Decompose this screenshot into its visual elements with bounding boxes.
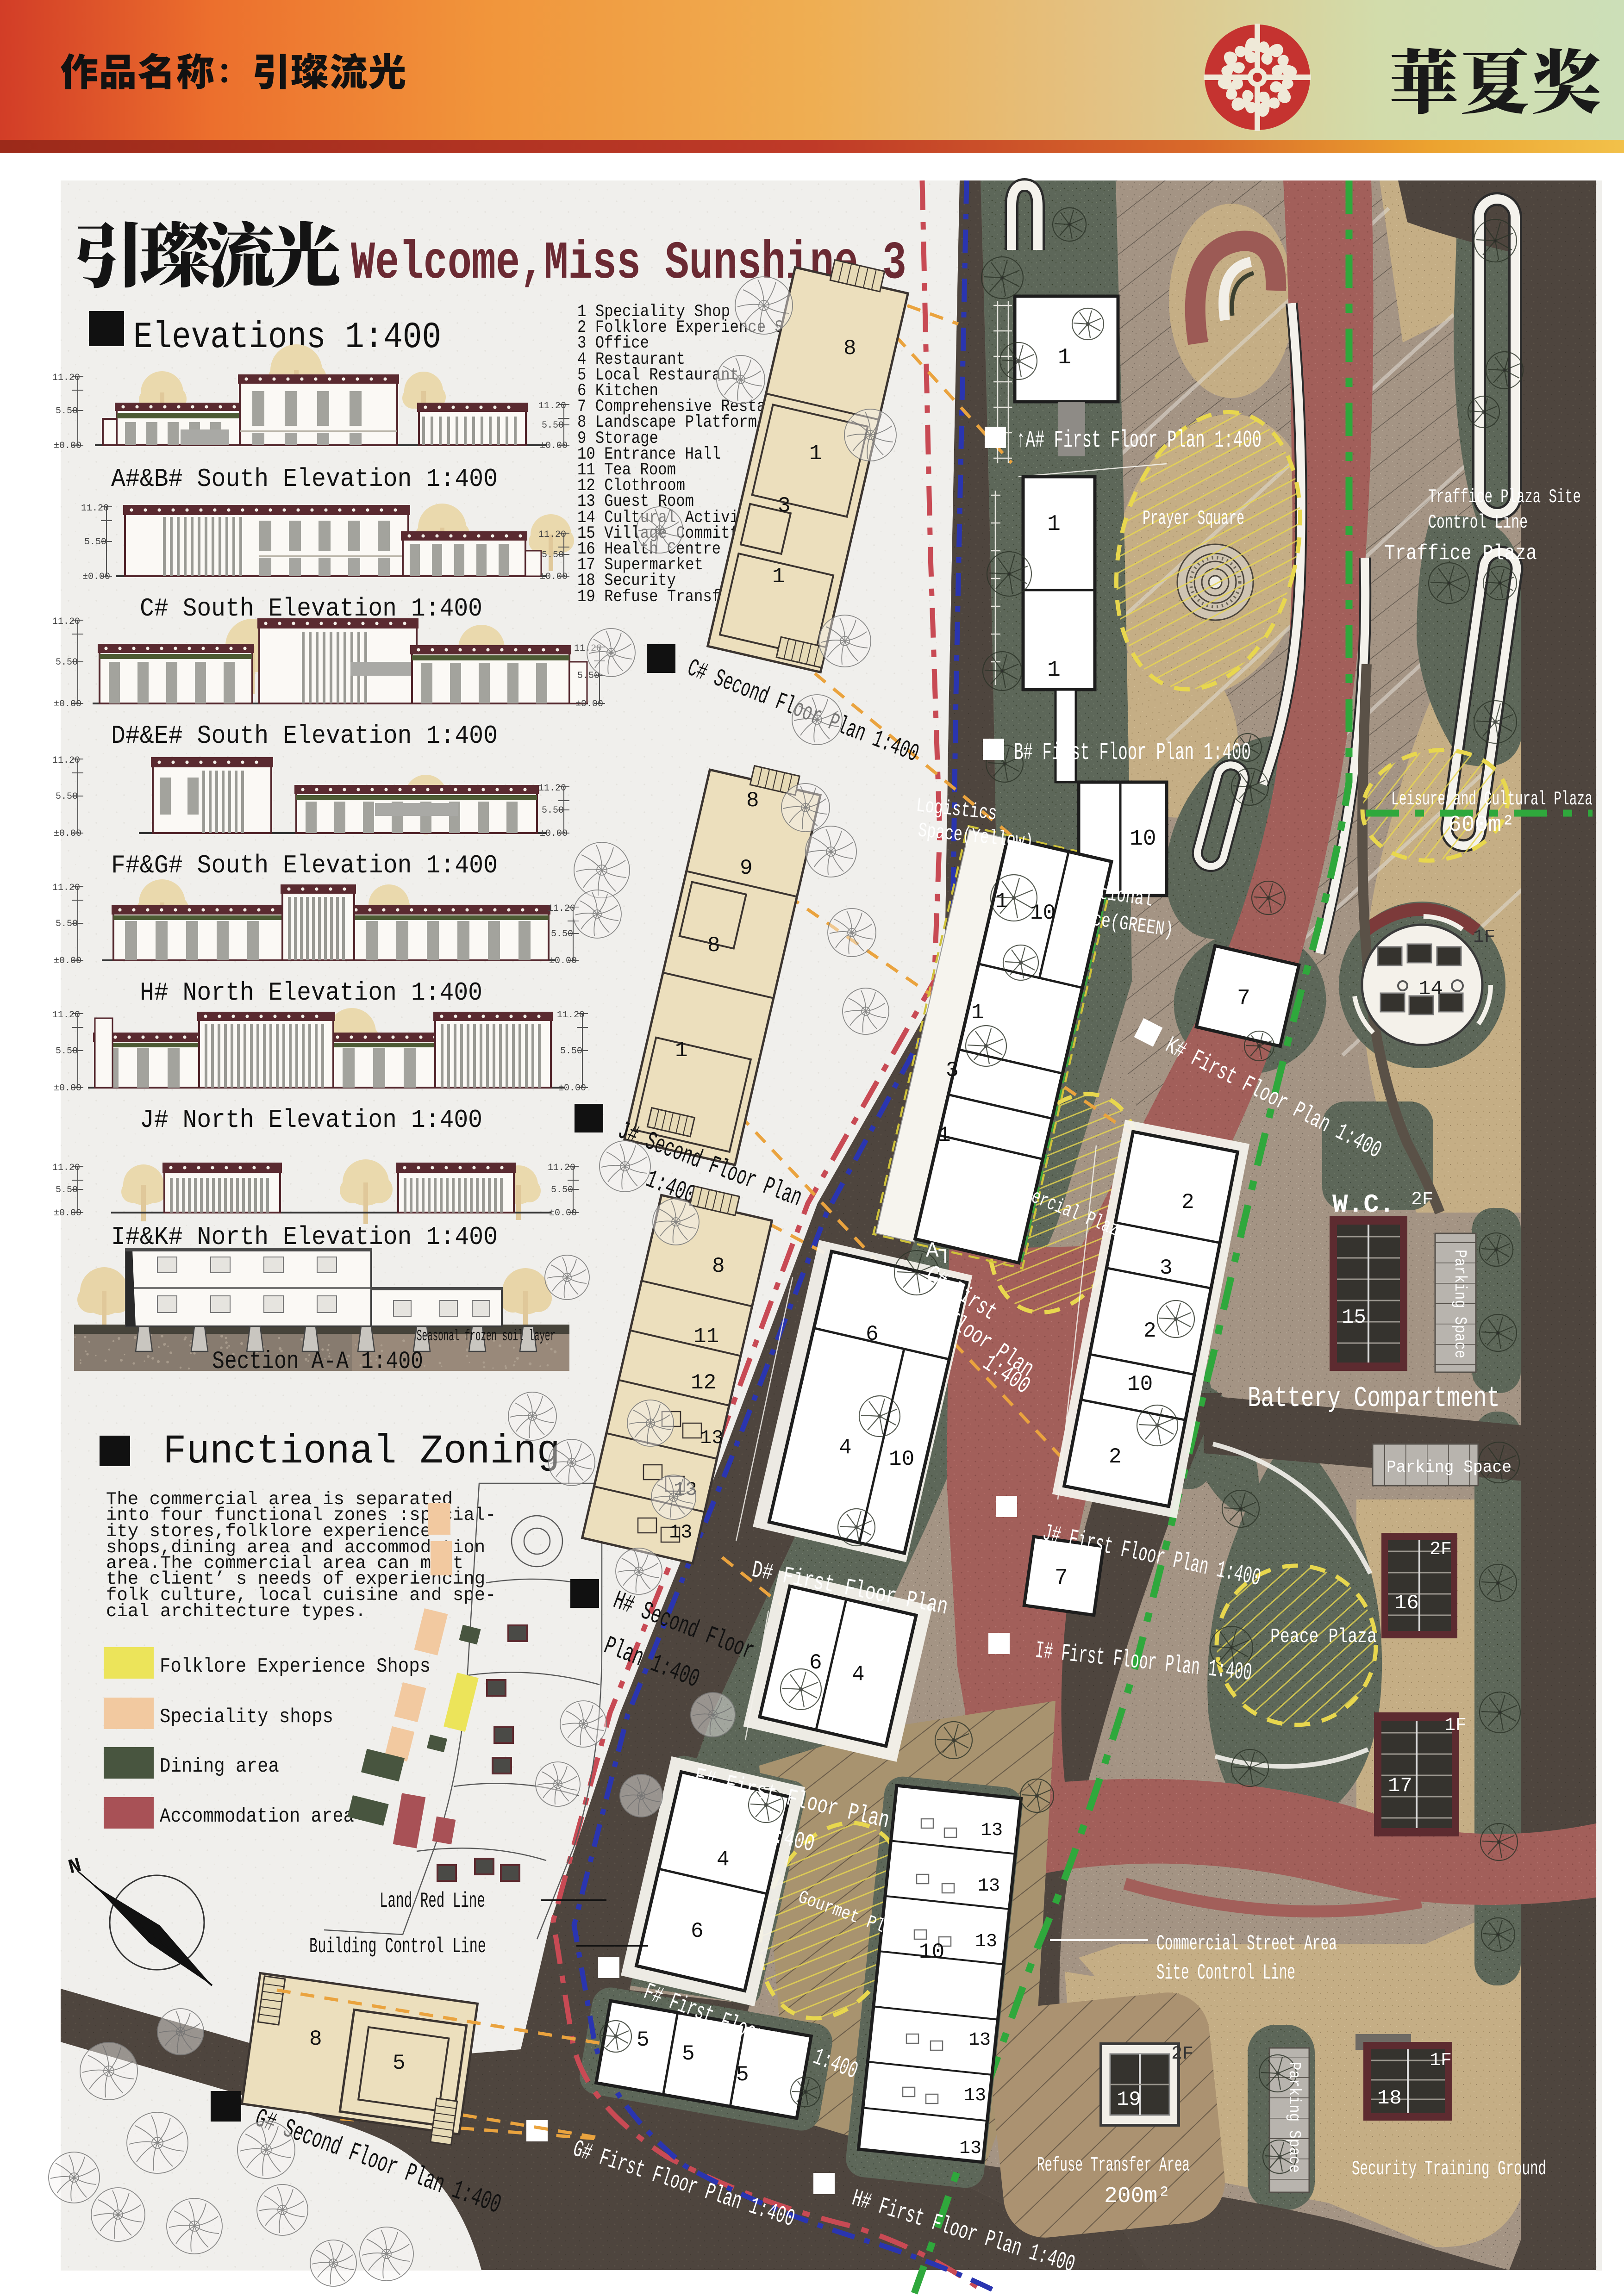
svg-text:W.C.: W.C. bbox=[1332, 1190, 1394, 1220]
svg-text:Prayer Square: Prayer Square bbox=[1143, 507, 1244, 530]
svg-text:1: 1 bbox=[675, 1039, 688, 1063]
svg-text:13: 13 bbox=[959, 2138, 981, 2159]
svg-text:5.50: 5.50 bbox=[84, 537, 106, 548]
svg-text:Accommodation area: Accommodation area bbox=[160, 1805, 354, 1828]
svg-text:11.20: 11.20 bbox=[52, 373, 80, 383]
svg-text:17: 17 bbox=[1388, 1774, 1412, 1798]
svg-text:8: 8 bbox=[843, 336, 856, 361]
svg-text:Seasonal frozen soil layer: Seasonal frozen soil layer bbox=[417, 1328, 556, 1345]
svg-text:5.50: 5.50 bbox=[542, 420, 564, 431]
svg-text:F#&G# South Elevation 1:400: F#&G# South Elevation 1:400 bbox=[111, 851, 498, 880]
svg-text:Parking Space: Parking Space bbox=[1450, 1250, 1469, 1358]
svg-text:15: 15 bbox=[1342, 1306, 1366, 1329]
svg-text:8: 8 bbox=[707, 933, 720, 958]
svg-text:Leisure and Cultural Plaza: Leisure and Cultural Plaza bbox=[1391, 788, 1593, 810]
svg-text:H# North Elevation 1:400: H# North Elevation 1:400 bbox=[140, 978, 482, 1008]
svg-text:5: 5 bbox=[393, 2051, 406, 2075]
svg-text:2F: 2F bbox=[1411, 1189, 1433, 1210]
svg-text:13: 13 bbox=[964, 2085, 986, 2106]
svg-text:11: 11 bbox=[693, 1325, 719, 1349]
svg-text:5.50: 5.50 bbox=[577, 671, 600, 681]
svg-text:3: 3 bbox=[778, 494, 791, 518]
svg-text:Battery Compartment: Battery Compartment bbox=[1248, 1382, 1500, 1415]
svg-text:±0.00: ±0.00 bbox=[54, 1208, 81, 1219]
svg-text:±0.00: ±0.00 bbox=[549, 1208, 577, 1219]
svg-text:200m²: 200m² bbox=[1104, 2184, 1171, 2209]
svg-text:5.50: 5.50 bbox=[56, 919, 78, 929]
svg-text:A#&B# South Elevation 1:400: A#&B# South Elevation 1:400 bbox=[111, 464, 498, 494]
svg-text:Land Red Line: Land Red Line bbox=[380, 1889, 485, 1913]
svg-text:2F: 2F bbox=[1171, 2044, 1193, 2065]
svg-text:2: 2 bbox=[1181, 1190, 1194, 1214]
svg-text:Speciality shops: Speciality shops bbox=[160, 1705, 333, 1729]
svg-text:11.20: 11.20 bbox=[548, 1163, 575, 1173]
svg-text:1: 1 bbox=[1047, 658, 1061, 683]
svg-text:Folklore Experience Shops: Folklore Experience Shops bbox=[160, 1655, 431, 1678]
svg-text:2: 2 bbox=[1109, 1445, 1122, 1469]
svg-text:5.50: 5.50 bbox=[56, 406, 78, 417]
svg-text:5.50: 5.50 bbox=[551, 1185, 573, 1195]
svg-text:11.20: 11.20 bbox=[538, 529, 566, 540]
svg-text:6: 6 bbox=[691, 1919, 704, 1943]
svg-text:5.50: 5.50 bbox=[56, 1185, 78, 1195]
svg-text:1F: 1F bbox=[1430, 2050, 1452, 2071]
svg-text:Building Control Line: Building Control Line bbox=[309, 1935, 486, 1959]
svg-text:13: 13 bbox=[975, 1931, 997, 1952]
svg-text:±0.00: ±0.00 bbox=[82, 572, 110, 582]
svg-text:1: 1 bbox=[995, 890, 1008, 914]
svg-text:±0.00: ±0.00 bbox=[54, 441, 81, 451]
svg-text:16: 16 bbox=[1394, 1592, 1419, 1615]
svg-text:600m²: 600m² bbox=[1448, 813, 1515, 838]
svg-text:5.50: 5.50 bbox=[56, 791, 78, 802]
svg-text:A┐: A┐ bbox=[926, 1239, 951, 1263]
svg-text:A: A bbox=[1024, 1014, 1037, 1038]
svg-text:Dining area: Dining area bbox=[160, 1755, 279, 1778]
svg-text:↑A# First Floor Plan 1:400: ↑A# First Floor Plan 1:400 bbox=[1016, 427, 1262, 454]
svg-text:I#&K# North Elevation 1:400: I#&K# North Elevation 1:400 bbox=[111, 1222, 498, 1252]
svg-text:4: 4 bbox=[717, 1848, 730, 1872]
svg-text:5.50: 5.50 bbox=[56, 1046, 78, 1057]
svg-text:±0.00: ±0.00 bbox=[54, 956, 81, 966]
svg-text:11.20: 11.20 bbox=[52, 755, 80, 766]
svg-text:±0.00: ±0.00 bbox=[575, 699, 603, 709]
svg-text:5.50: 5.50 bbox=[560, 1046, 582, 1057]
svg-text:Section A-A 1:400: Section A-A 1:400 bbox=[212, 1348, 423, 1376]
svg-text:5.50: 5.50 bbox=[56, 657, 78, 668]
svg-text:2F: 2F bbox=[1430, 1539, 1452, 1560]
svg-text:4: 4 bbox=[839, 1436, 852, 1460]
svg-text:11.20: 11.20 bbox=[538, 401, 566, 411]
svg-text:11.20: 11.20 bbox=[52, 883, 80, 893]
svg-text:Traffice Plaza Site: Traffice Plaza Site bbox=[1428, 486, 1581, 508]
svg-text:Parking Space: Parking Space bbox=[1285, 2062, 1304, 2173]
svg-text:1: 1 bbox=[772, 565, 785, 589]
svg-text:±0.00: ±0.00 bbox=[540, 828, 568, 839]
svg-text:1: 1 bbox=[938, 1123, 951, 1147]
svg-text:10: 10 bbox=[1030, 901, 1056, 925]
svg-text:5.50: 5.50 bbox=[542, 550, 564, 560]
svg-text:9: 9 bbox=[740, 856, 753, 880]
svg-text:1F: 1F bbox=[1444, 1715, 1467, 1736]
svg-text:11.20: 11.20 bbox=[538, 783, 566, 794]
svg-text:2: 2 bbox=[1143, 1319, 1156, 1343]
svg-text:5: 5 bbox=[637, 2028, 650, 2052]
svg-text:11.20: 11.20 bbox=[81, 503, 109, 514]
svg-text:13: 13 bbox=[978, 1876, 1000, 1897]
svg-text:1: 1 bbox=[809, 442, 822, 466]
svg-text:Control Line: Control Line bbox=[1428, 511, 1528, 534]
svg-text:J# North Elevation 1:400: J# North Elevation 1:400 bbox=[140, 1105, 482, 1135]
svg-text:±0.00: ±0.00 bbox=[558, 1083, 586, 1094]
svg-text:10: 10 bbox=[1127, 1372, 1153, 1396]
svg-text:Refuse Transfer Area: Refuse Transfer Area bbox=[1037, 2154, 1190, 2177]
svg-text:Security Training Ground: Security Training Ground bbox=[1352, 2158, 1546, 2181]
svg-text:6: 6 bbox=[866, 1322, 879, 1346]
svg-text:1: 1 bbox=[1058, 345, 1071, 370]
svg-text:1F: 1F bbox=[1473, 927, 1495, 948]
svg-text:±0.00: ±0.00 bbox=[54, 828, 81, 839]
svg-text:Peace Plaza: Peace Plaza bbox=[1270, 1625, 1377, 1649]
svg-text:Parking Space: Parking Space bbox=[1387, 1458, 1512, 1477]
svg-text:11.20: 11.20 bbox=[52, 1163, 80, 1173]
svg-text:11.20: 11.20 bbox=[52, 1010, 80, 1020]
svg-text:8: 8 bbox=[309, 2027, 322, 2051]
svg-text:3: 3 bbox=[1160, 1256, 1173, 1280]
svg-text:B# First Floor Plan 1:400: B# First Floor Plan 1:400 bbox=[1014, 739, 1251, 766]
svg-text:11.20: 11.20 bbox=[52, 616, 80, 627]
svg-text:13: 13 bbox=[700, 1427, 723, 1449]
svg-text:Functional Zoning: Functional Zoning bbox=[163, 1429, 560, 1475]
svg-text:13: 13 bbox=[981, 1820, 1003, 1841]
svg-text:A: A bbox=[928, 1218, 940, 1241]
svg-text:1: 1 bbox=[971, 1001, 984, 1025]
svg-text:cial architecture types.: cial architecture types. bbox=[106, 1601, 366, 1622]
svg-text:13: 13 bbox=[669, 1521, 692, 1543]
svg-text:D#&E# South Elevation 1:400: D#&E# South Elevation 1:400 bbox=[111, 721, 498, 751]
svg-text:8: 8 bbox=[712, 1254, 725, 1278]
svg-text:5.50: 5.50 bbox=[542, 805, 564, 816]
svg-text:4: 4 bbox=[852, 1662, 865, 1686]
svg-text:±0.00: ±0.00 bbox=[540, 572, 568, 582]
svg-text:10: 10 bbox=[889, 1447, 914, 1471]
svg-text:5: 5 bbox=[736, 2063, 749, 2087]
svg-text:Site Control Line: Site Control Line bbox=[1156, 1961, 1295, 1985]
svg-text:Commercial Street Area: Commercial Street Area bbox=[1156, 1932, 1337, 1956]
svg-text:±0.00: ±0.00 bbox=[540, 441, 568, 451]
svg-text:7: 7 bbox=[1237, 986, 1250, 1011]
svg-text:7: 7 bbox=[1055, 1566, 1068, 1591]
svg-text:14: 14 bbox=[1418, 977, 1443, 1001]
svg-text:19: 19 bbox=[1117, 2088, 1141, 2111]
svg-text:3: 3 bbox=[946, 1058, 959, 1083]
svg-text:1: 1 bbox=[1047, 512, 1061, 537]
svg-text:10: 10 bbox=[919, 1940, 944, 1964]
svg-text:18: 18 bbox=[1377, 2087, 1402, 2110]
svg-text:11.20: 11.20 bbox=[548, 903, 575, 914]
svg-text:±0.00: ±0.00 bbox=[54, 699, 81, 709]
svg-text:11.20: 11.20 bbox=[557, 1010, 585, 1020]
svg-text:10: 10 bbox=[1130, 827, 1156, 852]
svg-text:5.50: 5.50 bbox=[551, 929, 573, 940]
svg-text:±0.00: ±0.00 bbox=[54, 1083, 81, 1094]
svg-text:12: 12 bbox=[691, 1371, 716, 1395]
svg-text:8: 8 bbox=[746, 789, 759, 813]
svg-text:5: 5 bbox=[682, 2042, 695, 2066]
svg-text:Traffice Plaza: Traffice Plaza bbox=[1384, 541, 1537, 566]
svg-text:±0.00: ±0.00 bbox=[549, 956, 577, 966]
svg-text:13: 13 bbox=[968, 2030, 991, 2051]
